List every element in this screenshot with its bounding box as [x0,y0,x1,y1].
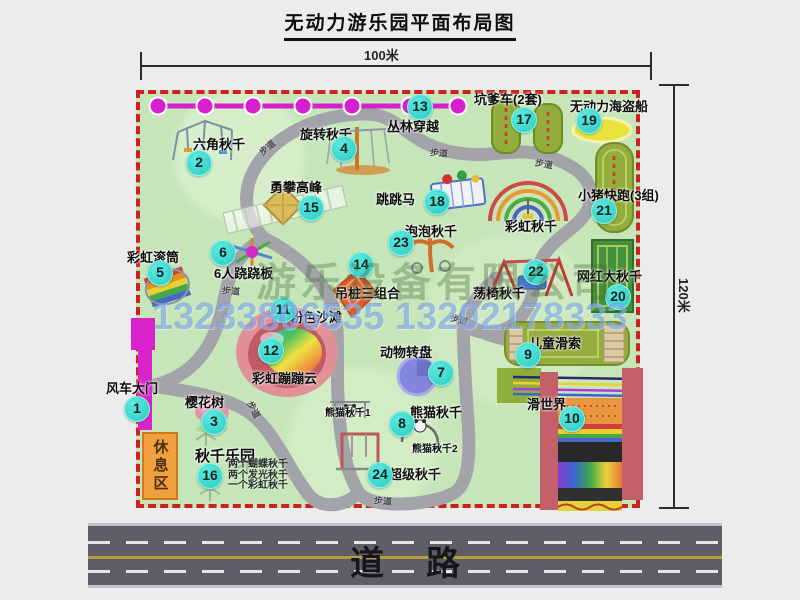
map-label-彩虹蹦蹦云: 彩虹蹦蹦云 [252,368,317,387]
road: 道路 [88,523,722,588]
swing-park-details: 两个蝴蝶秋千两个发光秋千一个彩虹秋千 [228,460,288,492]
dim-height-label: 120米 [675,278,694,313]
marker-9: 9 [515,342,541,368]
rest-area: 休息区 [142,432,178,500]
marker-24: 24 [367,462,393,488]
swing-park-detail-line: 一个彩虹秋千 [228,481,288,492]
marker-21: 21 [591,198,617,224]
dim-tick-top-right [650,52,652,80]
marker-4: 4 [331,136,357,162]
marker-19: 19 [576,108,602,134]
dim-width-label: 100米 [364,45,399,64]
marker-2: 2 [186,150,212,176]
marker-15: 15 [298,195,324,221]
watermark-phone: 13233806535 13202178333 [152,296,628,339]
dim-tick-right-top [659,84,689,86]
marker-17: 17 [511,107,537,133]
map-label-熊猫秋千: 熊猫秋千 [410,402,462,421]
page-title-text: 无动力游乐园平面布局图 [284,8,515,41]
map-label-坑爹车(2套): 坑爹车(2套) [474,89,542,108]
map-label-动物转盘: 动物转盘 [380,342,432,361]
marker-7: 7 [428,360,454,386]
map-label-勇攀高峰: 勇攀高峰 [270,177,322,196]
map-label-小猪快跑(3组): 小猪快跑(3组) [578,185,659,204]
map-label-超级秋千: 超级秋千 [389,464,441,483]
marker-3: 3 [201,409,227,435]
map-label-樱花树: 樱花树 [185,392,224,411]
marker-12: 12 [258,338,284,364]
map-label-熊猫秋千1: 熊猫秋千1 [325,404,371,419]
trail-label-1: 步道 [429,145,448,160]
marker-16: 16 [197,463,223,489]
map-label-熊猫秋千2: 熊猫秋千2 [412,440,458,455]
screenshot-stage: 无动力游乐园平面布局图 100米 120米 [0,0,800,600]
trail-label-6: 步道 [373,493,392,508]
marker-18: 18 [424,189,450,215]
marker-10: 10 [559,406,585,432]
map-label-彩虹秋千: 彩虹秋千 [505,216,557,235]
swing-park-detail-line: 两个蝴蝶秋千 [228,460,288,471]
marker-1: 1 [124,396,150,422]
dim-tick-top-left [140,52,142,80]
marker-13: 13 [407,94,433,120]
marker-5: 5 [147,260,173,286]
dim-tick-right-bottom [659,507,689,509]
marker-8: 8 [389,411,415,437]
page-title: 无动力游乐园平面布局图 [0,8,800,41]
map-label-风车大门: 风车大门 [106,378,158,397]
map-label-跳跳马: 跳跳马 [376,189,415,208]
rest-area-label: 休息区 [150,439,171,493]
marker-6: 6 [210,240,236,266]
road-label: 道路 [88,536,722,585]
map-label-滑世界: 滑世界 [527,394,566,413]
map-label-丛林穿越: 丛林穿越 [387,116,439,135]
dim-line-top [140,65,652,67]
